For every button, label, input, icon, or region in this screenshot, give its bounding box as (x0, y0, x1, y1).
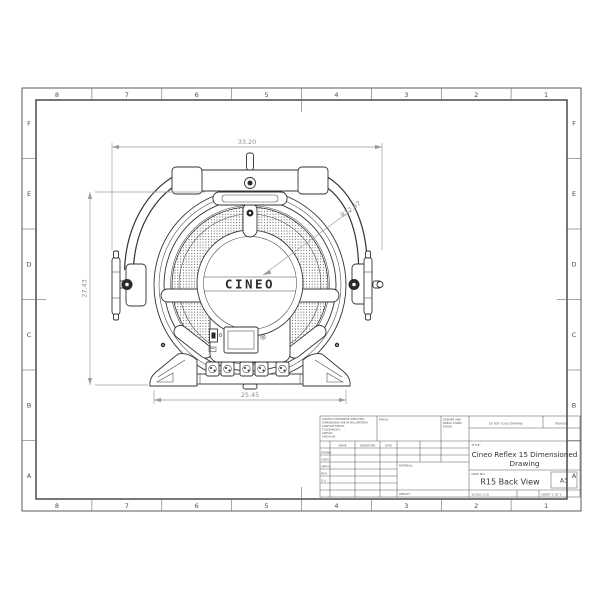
zone-col-label: 7 (125, 91, 129, 99)
title-block: UNLESS OTHERWISE SPECIFIED: DIMENSIONS A… (320, 416, 580, 497)
deburr-note: EDGES (443, 425, 453, 429)
zone-col-label: 4 (334, 502, 338, 510)
fixture-back-view: CINEO (112, 153, 383, 389)
approval-row-label: Q.A (321, 478, 326, 482)
zone-col-label: 2 (474, 502, 478, 510)
zone-col-label: 3 (404, 91, 408, 99)
connector (255, 362, 268, 376)
zone-row-label: C (27, 331, 32, 339)
yoke-top-stem (247, 153, 254, 170)
zone-col-label: 3 (404, 502, 408, 510)
tilt-handle-right (349, 251, 384, 320)
do-not-scale-note: DO NOT SCALE DRAWING (489, 422, 523, 426)
connector (276, 362, 289, 376)
scale-label: SCALE:1:10 (472, 492, 489, 496)
zone-col-label: 6 (195, 91, 199, 99)
zone-row-label: D (26, 261, 31, 269)
connector (240, 362, 253, 376)
zone-row-label: B (27, 402, 31, 410)
approval-row-label: MFG (321, 471, 327, 475)
dim-width-bottom: 25.45 (241, 391, 260, 399)
zone-row-label: A (27, 472, 32, 480)
zone-col-label: 1 (544, 91, 548, 99)
cineo-logo: CINEO (225, 277, 275, 292)
zone-col-label: 5 (265, 502, 269, 510)
foot-right (303, 354, 350, 386)
zone-col-label: 5 (265, 91, 269, 99)
zone-row-label: A (572, 472, 577, 480)
dwg-no-value: R15 Back View (480, 478, 540, 487)
zone-col-label: 4 (334, 91, 338, 99)
tolerance-notes: UNLESS OTHERWISE SPECIFIED: DIMENSIONS A… (321, 417, 368, 439)
dim-height-left: 27.43 (81, 279, 89, 298)
weight-label: WEIGHT: (399, 492, 411, 496)
zone-row-label: F (27, 120, 31, 128)
zone-row-label: B (572, 402, 576, 410)
zone-row-label: C (572, 331, 577, 339)
zone-row-label: E (572, 190, 576, 198)
zone-col-label: 8 (55, 91, 59, 99)
connector (206, 362, 219, 376)
zone-col-label: 6 (195, 502, 199, 510)
approval-row-label: DRAWN (321, 450, 331, 454)
yoke-bracket (213, 192, 287, 205)
tolerance-note-line: ANGULAR: (322, 435, 336, 439)
zone-col-label: 1 (544, 502, 548, 510)
zone-row-label: D (571, 261, 576, 269)
zone-row-label: E (27, 190, 31, 198)
sheet-label: SHEET 1 OF 1 (541, 492, 562, 496)
dwg-no-label: DWG NO. (472, 472, 486, 476)
drawing-title-line1: Cineo Reflex 15 Dimensioned (472, 450, 578, 459)
col-header-date: DATE (385, 443, 392, 447)
approval-row-label: APPV'D (321, 464, 331, 468)
zone-col-label: 8 (55, 502, 59, 510)
foot-left (150, 354, 197, 386)
zone-row-label: F (572, 120, 576, 128)
dim-width-top: 33.20 (238, 138, 257, 146)
approval-row-label: CHK'D (321, 457, 329, 461)
col-header-name: NAME (339, 443, 347, 447)
finish-label: FINISH: (379, 418, 389, 422)
paper-size: A3 (560, 478, 568, 485)
title-label: TITLE: (471, 443, 481, 447)
zone-col-label: 2 (474, 91, 478, 99)
material-label: MATERIAL: (399, 464, 413, 468)
zone-col-label: 7 (125, 502, 129, 510)
top-rib (243, 203, 257, 237)
engineering-drawing-sheet: 8 7 6 5 4 3 2 1 8 7 6 5 4 3 2 1 F E D C … (0, 0, 600, 600)
revision-label: REVISION (555, 422, 568, 426)
drawing-title-line2: Drawing (510, 459, 540, 468)
col-header-signature: SIGNATURE (360, 443, 376, 447)
connector (221, 362, 234, 376)
